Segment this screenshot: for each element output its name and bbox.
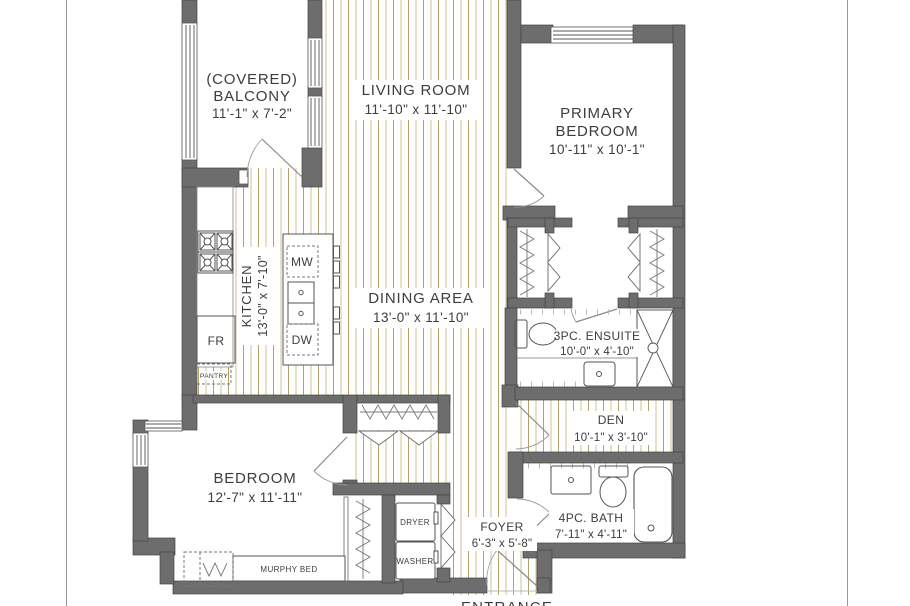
bedroom-corner-window-horizontal — [145, 421, 182, 431]
laundry-fixtures — [396, 503, 438, 579]
dishwasher-label: DW — [292, 333, 313, 347]
den-label: DEN 10'-1" x 3'-10" — [570, 411, 652, 445]
primary-closet-right — [628, 229, 664, 297]
balcony-right-window-upper — [308, 38, 322, 88]
bath-label: 4PC. BATH 7'-11" x 4'-11" — [549, 509, 634, 541]
bath-name: 4PC. BATH — [559, 511, 624, 525]
bath-toilet-icon — [599, 466, 628, 507]
bedroom-dims: 12'-7" x 11'-11" — [208, 490, 303, 505]
den-name: DEN — [598, 413, 625, 427]
primary-closet-left — [520, 229, 560, 297]
ensuite-dims: 10'-0" x 4'-10" — [560, 346, 634, 358]
primary-bedroom-window — [551, 27, 633, 43]
primary-name-line2: BEDROOM — [555, 123, 638, 140]
living-room-label: LIVING ROOM 11'-10" x 11'-10" — [350, 80, 482, 120]
dining-dims: 13'-0" x 11'-10" — [373, 310, 469, 325]
foyer-name: FOYER — [480, 520, 523, 534]
cooktop-icon — [198, 231, 233, 273]
balcony-name-line1: (COVERED) — [206, 71, 297, 88]
bath-vanity-icon — [551, 466, 591, 494]
den-dims: 10'-1" x 3'-10" — [574, 432, 648, 444]
dryer-handle — [434, 512, 438, 524]
murphy-bed-label: MURPHY BED — [260, 565, 317, 574]
microwave-label: MW — [291, 255, 313, 269]
washer-label: WASHER — [396, 557, 433, 566]
dining-area-label: DINING AREA 13'-0" x 11'-10" — [355, 288, 487, 328]
fridge-label: FR — [208, 334, 225, 348]
balcony-right-window-lower — [308, 96, 322, 148]
foyer-floor — [450, 390, 507, 595]
bedroom-name: BEDROOM — [213, 470, 296, 487]
dryer-label: DRYER — [400, 518, 430, 527]
bedroom-hall-floor — [350, 430, 450, 483]
balcony-label: (COVERED) BALCONY 11'-1" x 7'-2" — [206, 71, 297, 121]
bathtub-icon — [634, 467, 672, 542]
balcony-left-window — [182, 23, 197, 160]
pantry-label: PANTRY — [200, 373, 228, 380]
primary-name-line1: PRIMARY — [560, 105, 634, 122]
balcony-door-threshold-floor — [247, 168, 302, 188]
foyer-dims: 6'-3" x 5'-8" — [472, 538, 533, 550]
entrance-label: ENTRANCE — [461, 599, 553, 606]
balcony-dims: 11'-1" x 7'-2" — [212, 106, 292, 121]
dining-name: DINING AREA — [368, 290, 474, 307]
ensuite-door — [571, 309, 617, 322]
kitchen-label: KITCHEN 13'-0" x 7'-10" — [237, 247, 275, 345]
living-room-name: LIVING ROOM — [362, 82, 471, 99]
balcony-name-line2: BALCONY — [213, 88, 290, 105]
primary-bedroom-door — [514, 169, 544, 207]
bath-dims: 7'-11" x 4'-11" — [555, 529, 627, 541]
washer-handle — [434, 551, 438, 563]
bedroom-corner-window-vertical — [133, 433, 148, 467]
foyer-label: FOYER 6'-3" x 5'-8" — [463, 517, 537, 551]
kitchen-dims: 13'-0" x 7'-10" — [256, 255, 270, 336]
ensuite-shower-icon — [637, 310, 673, 387]
living-room-dims: 11'-10" x 11'-10" — [365, 102, 468, 117]
floor-plan-drawing: (COVERED) BALCONY 11'-1" x 7'-2" LIVING … — [0, 0, 910, 606]
ensuite-label: 3PC. ENSUITE 10'-0" x 4'-10" — [554, 329, 641, 358]
ensuite-sink-icon — [584, 362, 615, 386]
bedroom-closet — [344, 497, 370, 581]
bedroom-door — [314, 437, 347, 485]
floor-plan-page: (COVERED) BALCONY 11'-1" x 7'-2" LIVING … — [0, 0, 910, 606]
primary-bedroom-label: PRIMARY BEDROOM 10'-11" x 10'-1" — [549, 105, 645, 157]
kitchen-name: KITCHEN — [239, 265, 254, 328]
ensuite-name: 3PC. ENSUITE — [554, 329, 641, 343]
ensuite-toilet-icon — [515, 320, 557, 348]
living-dining-floor — [322, 0, 507, 395]
bedroom-label: BEDROOM 12'-7" x 11'-11" — [208, 470, 303, 505]
primary-dims: 10'-11" x 10'-1" — [549, 142, 645, 157]
